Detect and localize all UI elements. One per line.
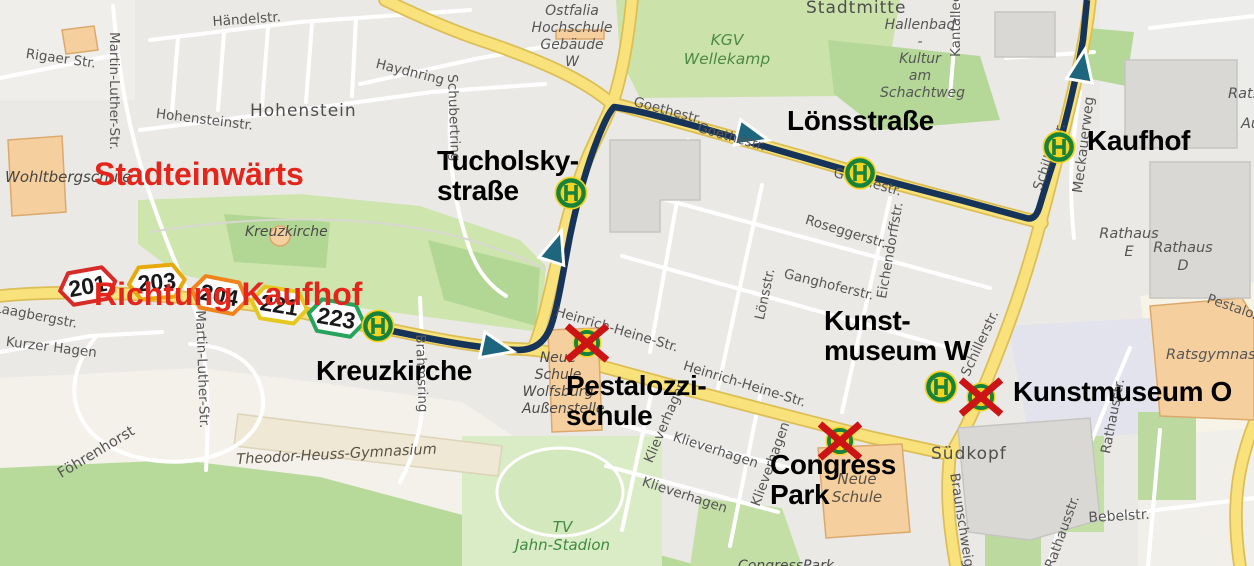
stop-label-kaufhof: Kaufhof [1087,126,1190,156]
stop-label-tucholskystrasse: Tucholsky- straße [437,146,579,206]
direction-header-line2: Richtung Kaufhof [94,274,362,314]
stop-icon-kaufhof [1029,117,1089,177]
stop-icon-loensstrasse [830,143,890,203]
map-canvas: Händelstr.Rigaer Str.Martin-Luther-Str.H… [0,0,1254,566]
direction-header: Stadteinwärts Richtung Kaufhof [94,74,362,394]
direction-header-line1: Stadteinwärts [94,154,362,194]
stop-label-congress-park: Congress Park [770,450,896,510]
stop-label-pestalozzischule: Pestalozzi- schule [566,371,706,431]
cancelled-stop-icon-pestalozzischule [557,313,617,373]
stop-label-kunstmuseum-o: Kunstmuseum O [1013,377,1232,407]
stop-label-loensstrasse: Lönsstraße [787,106,934,136]
cancelled-stop-icon-kunstmuseum-o [951,367,1011,427]
stop-label-kunstmuseum-w: Kunst- museum W [824,306,970,366]
